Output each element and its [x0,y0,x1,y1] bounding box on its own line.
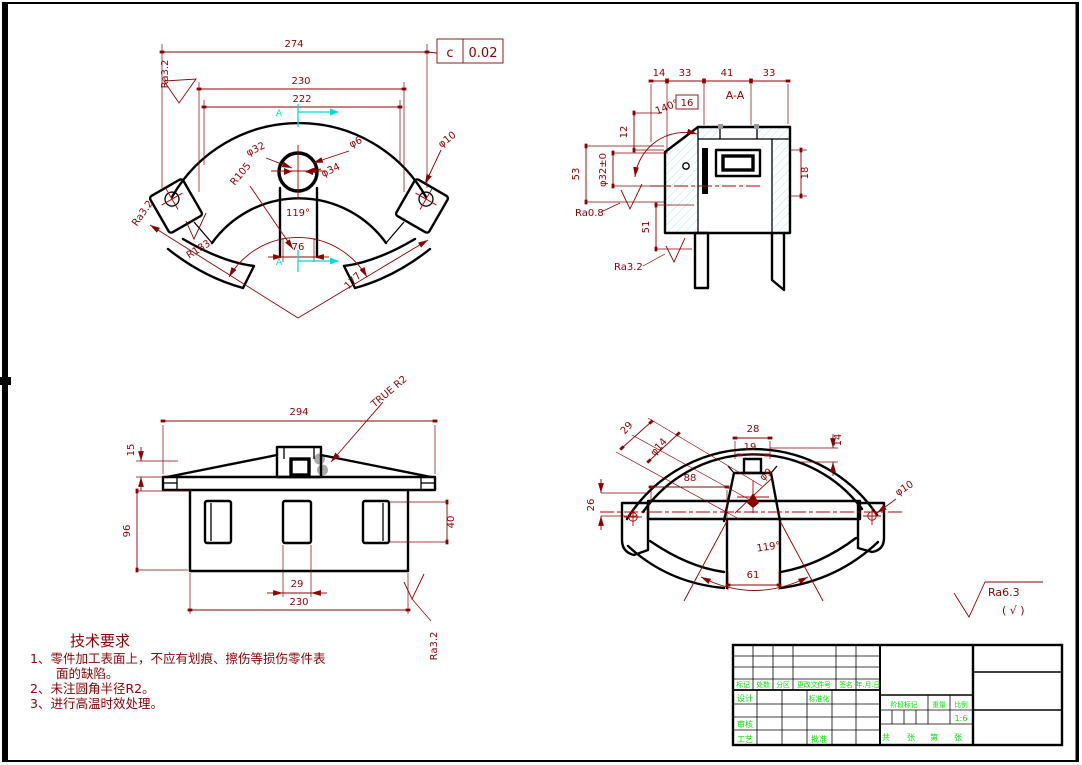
label-sheets: 张 [907,733,915,742]
rev-col-mark: 标记 [736,680,750,689]
label-weight: 重量 [932,701,946,709]
roughness-icon [404,574,424,599]
dim-53: 53 [571,168,582,181]
roughness-icon [621,184,642,209]
section-mark-a-bottom: A [276,250,339,272]
dim-29: 29 [619,420,636,437]
dim-61: 61 [747,570,760,581]
dim-15: 15 [126,444,137,457]
dim-phi34: φ34 [320,162,342,180]
svg-text:A: A [276,258,283,268]
tech-req-title: 技术要求 [70,632,130,650]
dim-28: 28 [747,424,760,435]
label-no: 第 [930,732,938,742]
section-rib [702,148,708,194]
roughness-ra08: Ra0.8 [575,208,604,219]
ear-hole-cross-right [863,507,881,525]
dim-12: 12 [619,126,630,139]
tech-req-line-2: 2、未注圆角半径R2。 [30,681,155,696]
dim-26: 26 [586,499,597,512]
title-block: 标记 处数 分区 更改文件号 签名 年.月.日 设计 标准化 审核 工艺 批准 … [733,645,1062,745]
label-stage: 阶段标记 [890,700,917,709]
dim-40: 40 [446,516,457,529]
dim-274: 274 [284,39,303,50]
dim-41: 41 [721,68,734,79]
bottom-view: 26 88 28 19 14 29 φ14 φ9 φ10 119° 61 [586,418,916,601]
section-label: A-A [726,89,745,102]
dim-r105: R105 [229,161,254,188]
dim-angle119: 119° [286,208,310,219]
tech-req-line-1: 1、零件加工表面上，不应有划痕、擦伤等损伤零件表 [30,651,326,666]
dim-angle119: 119° [756,540,781,554]
dim-phi32: φ32 [245,141,267,159]
dim-177: 177 [343,271,364,292]
section-view: 14 33 41 33 16 A-A 140° 12 53 φ32±0 Ra0.… [571,68,811,290]
rev-col-count: 处数 [756,680,770,689]
side-view: 294 15 TRUE R2 96 40 29 230 Ra3.2 [122,374,457,660]
svg-text:A: A [276,109,283,119]
dim-96: 96 [122,525,133,538]
dim-222: 222 [292,94,311,105]
ear-hole-cross-left [624,508,642,526]
tech-requirements: 技术要求 1、零件加工表面上，不应有划痕、擦伤等损伤零件表 面的缺陷。 2、未注… [30,632,326,711]
dim-19: 19 [744,442,757,453]
dim-14: 14 [653,68,666,79]
dim-33b: 33 [763,68,776,79]
label-audit: 审核 [737,719,753,729]
rev-col-date: 年.月.日 [856,680,881,689]
rev-col-zone: 分区 [776,680,790,689]
tolerance-frame: c 0.02 [427,39,503,63]
roughness-ra32: Ra3.2 [614,262,643,273]
dim-true-r2: TRUE R2 [369,374,410,411]
dim-230: 230 [291,76,310,87]
dim-29: 29 [291,579,304,590]
dim-14: 14 [833,434,844,447]
label-scale: 比例 [954,700,968,709]
rev-col-docno: 更改文件号 [797,680,831,689]
dim-phi32tol: φ32±0 [598,153,609,187]
roughness-ra32-top: Ra3.2 [160,60,171,89]
dim-230: 230 [289,597,308,608]
cad-canvas: 274 230 222 φ32 φ6 φ34 φ10 R105 R183 177… [0,0,1082,765]
dim-51: 51 [641,221,652,234]
general-roughness-note: Ra6.3 ( √ ) [954,582,1043,617]
dim-294: 294 [289,407,308,418]
label-craft: 工艺 [737,735,753,744]
centering-mark [0,377,11,385]
roughness-ra32: Ra3.2 [429,632,440,661]
dim-33a: 33 [679,68,692,79]
drawing-sheet: 274 230 222 φ32 φ6 φ34 φ10 R105 R183 177… [0,0,1082,765]
dim-phi10: φ10 [894,479,916,499]
dim-88: 88 [684,473,697,484]
front-left-ear [149,178,203,233]
roughness-ra32-lower: Ra3.2 [130,199,156,229]
label-total: 共 [882,733,890,742]
label-standardize: 标准化 [809,694,830,703]
front-view: 274 230 222 φ32 φ6 φ34 φ10 R105 R183 177… [130,39,503,318]
roughness-icon [954,582,985,617]
dim-phi10: φ10 [436,130,458,151]
tech-req-line-1b: 面的缺陷。 [56,666,119,681]
roughness-icon [186,213,206,239]
dim-phi14: φ14 [649,436,670,458]
scale-value: 1:6 [955,714,968,723]
roughness-bracket: ( √ ) [1002,604,1025,617]
label-sheet: 张 [954,733,962,742]
label-design: 设计 [737,693,753,703]
rev-col-sign: 签名 [839,680,853,689]
front-right-ear [395,178,449,233]
tolerance-datum: c [446,46,453,61]
tech-req-line-3: 3、进行高温时效处理。 [30,696,163,711]
dim-16: 16 [681,98,694,109]
dim-18: 18 [800,167,811,180]
roughness-icon [666,238,685,262]
label-approve: 批准 [811,734,827,744]
tolerance-value: 0.02 [469,46,498,61]
roughness-value: Ra6.3 [988,586,1020,599]
